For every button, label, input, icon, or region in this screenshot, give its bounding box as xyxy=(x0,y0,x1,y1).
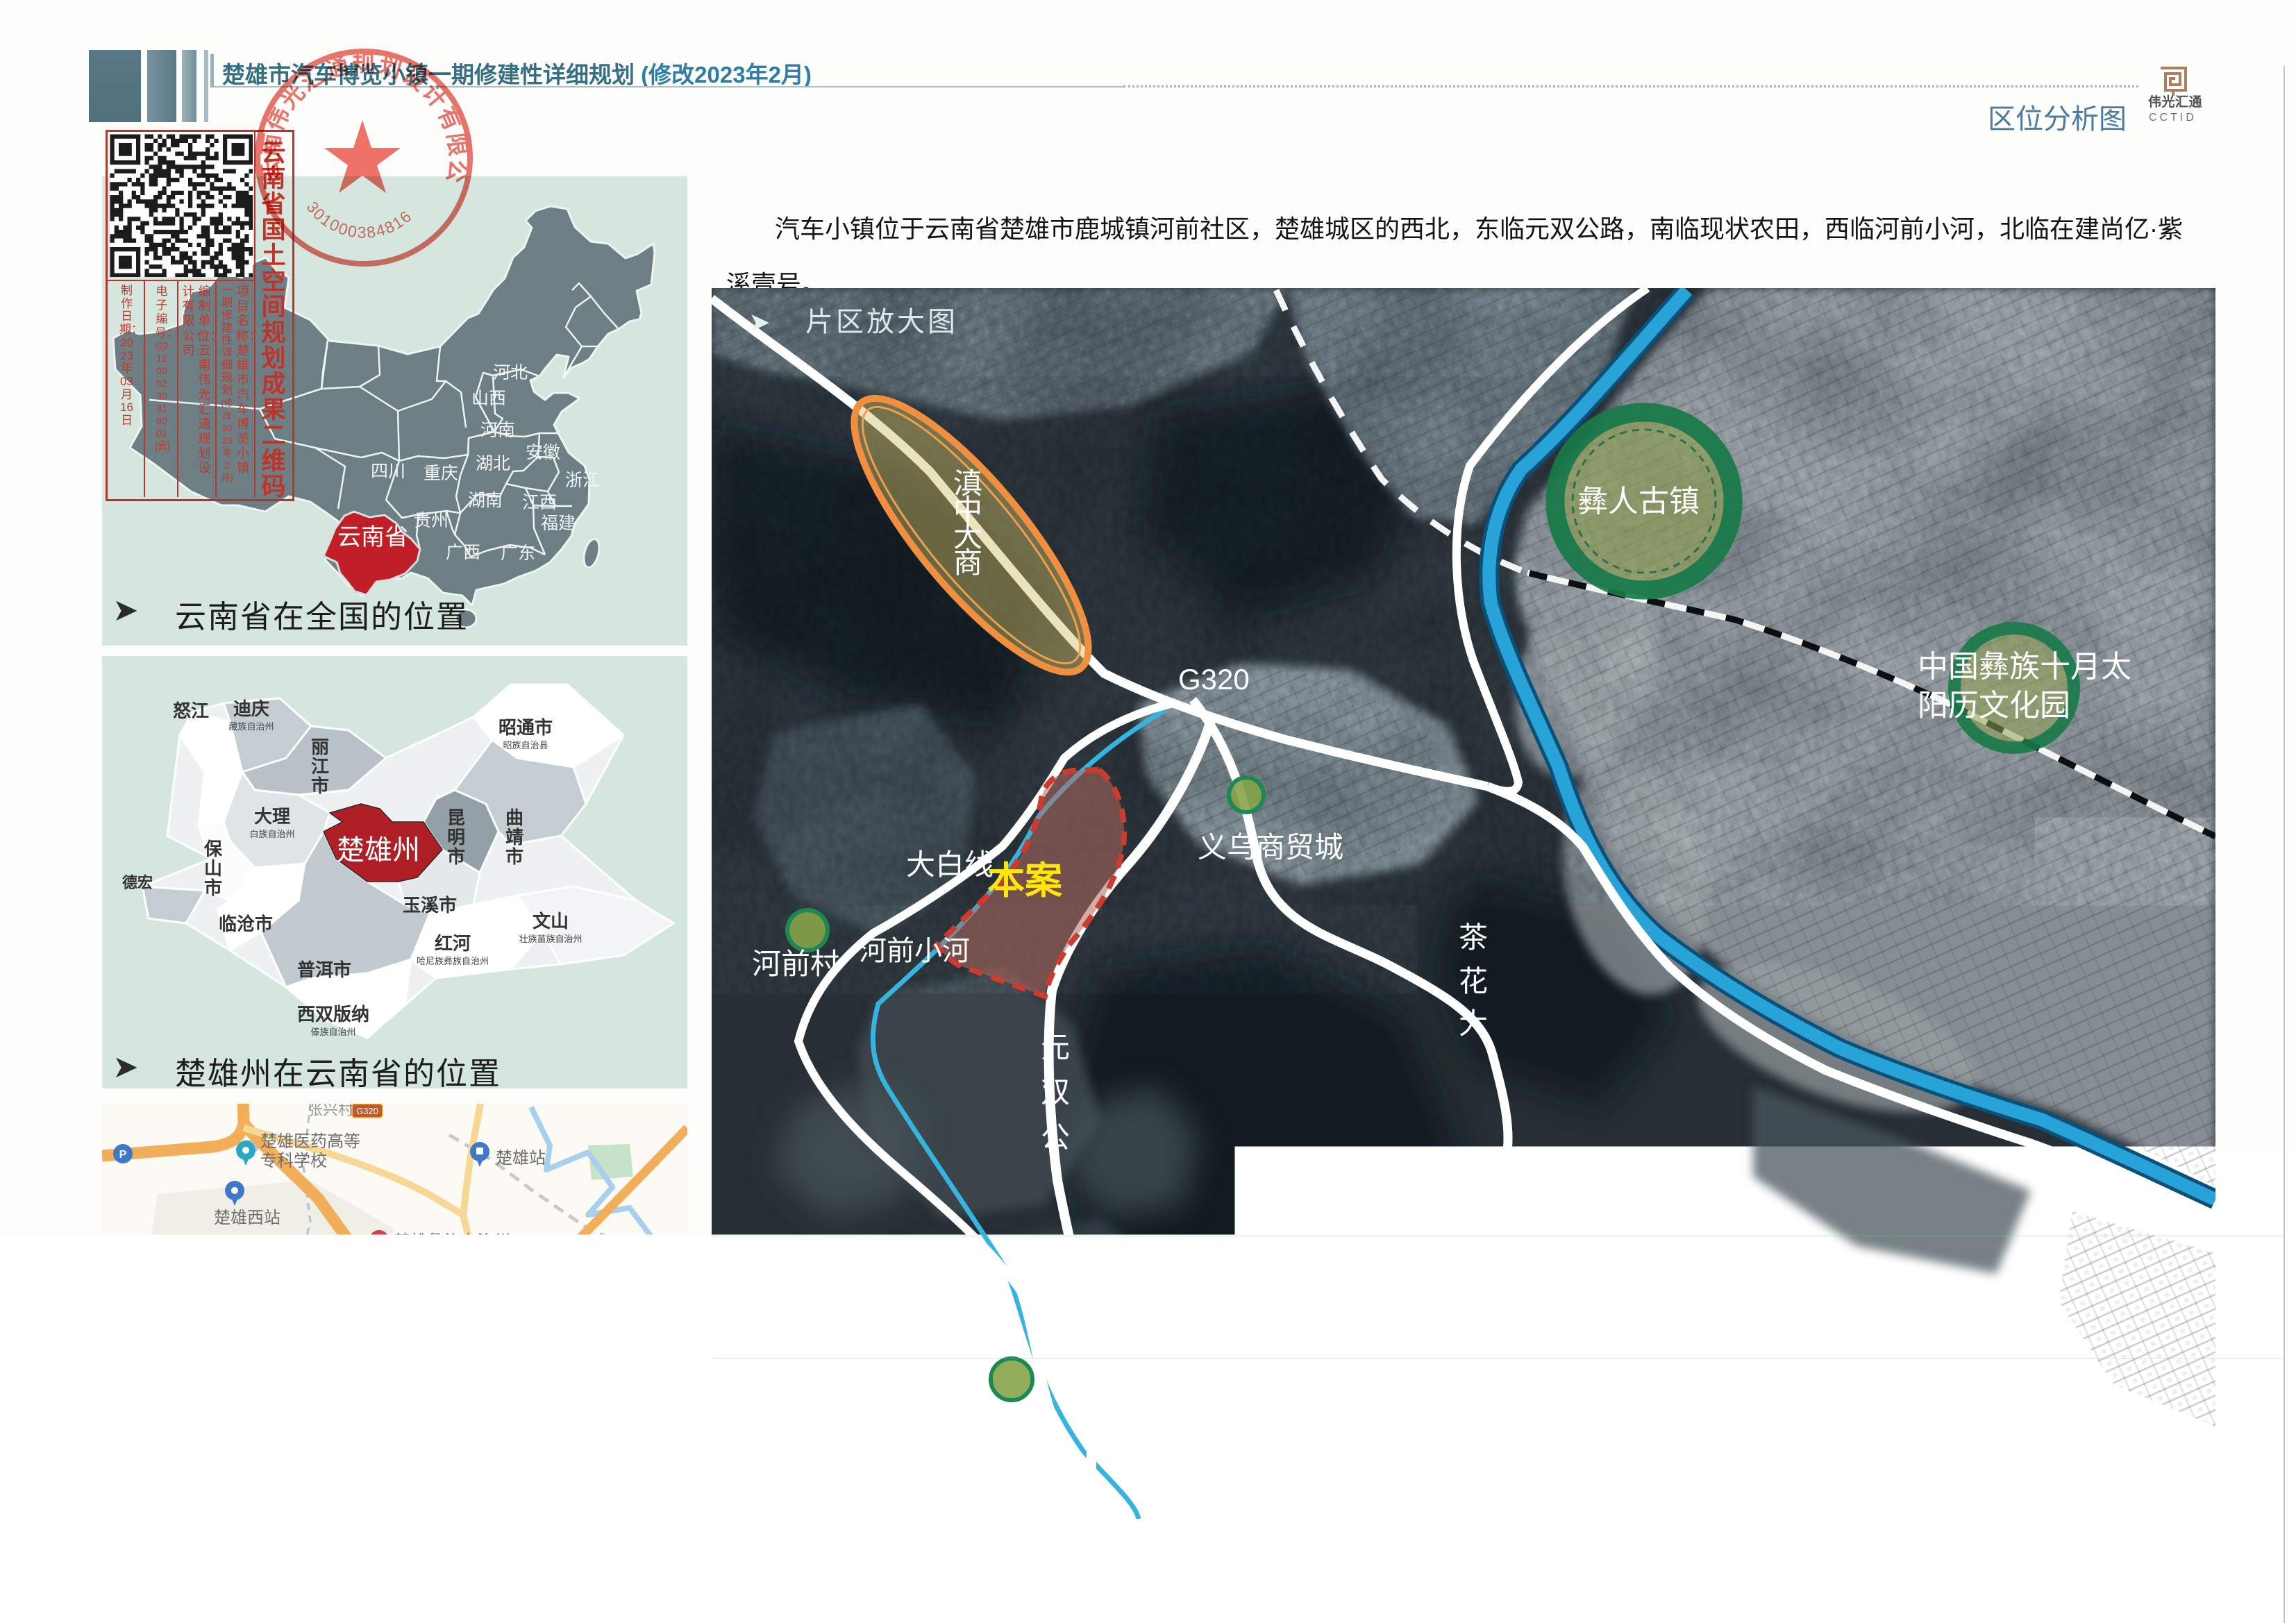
svg-text:市: 市 xyxy=(505,846,523,867)
svg-text:河前小河: 河前小河 xyxy=(859,936,970,966)
svg-text:昭通市: 昭通市 xyxy=(498,717,553,738)
svg-text:湖南: 湖南 xyxy=(468,491,503,510)
svg-text:张兴村: 张兴村 xyxy=(308,1104,353,1118)
svg-text:伟光汇通: 伟光汇通 xyxy=(2148,94,2203,110)
svg-text:楚雄客运站: 楚雄客运站 xyxy=(471,1386,555,1404)
svg-text:下河村: 下河村 xyxy=(115,1361,160,1379)
svg-text:彝人古镇: 彝人古镇 xyxy=(334,1295,401,1314)
svg-text:河南: 河南 xyxy=(480,421,515,440)
svg-text:茶: 茶 xyxy=(1459,921,1488,954)
svg-text:湖北: 湖北 xyxy=(476,454,510,473)
svg-text:楚雄站: 楚雄站 xyxy=(496,1149,546,1168)
svg-text:G320: G320 xyxy=(1178,663,1250,696)
svg-text:增平村: 增平村 xyxy=(953,1407,1041,1440)
svg-text:楚雄医药高等: 楚雄医药高等 xyxy=(260,1132,360,1151)
svg-text:彝人古镇: 彝人古镇 xyxy=(1577,485,1700,519)
svg-text:市: 市 xyxy=(204,877,222,898)
svg-text:西双版纳: 西双版纳 xyxy=(297,1004,369,1025)
svg-text:河前村: 河前村 xyxy=(752,948,839,980)
svg-text:P: P xyxy=(119,1149,127,1161)
svg-text:P: P xyxy=(672,1307,680,1319)
svg-text:301000384816: 301000384816 xyxy=(303,198,415,242)
svg-text:重庆: 重庆 xyxy=(424,464,458,483)
svg-text:曲: 曲 xyxy=(505,807,523,828)
svg-text:江西: 江西 xyxy=(522,493,557,512)
svg-text:山西: 山西 xyxy=(471,389,506,408)
svg-text:医药园区: 医药园区 xyxy=(621,1380,687,1399)
svg-text:傣族自治州: 傣族自治州 xyxy=(310,1027,355,1037)
svg-text:阳历文化园: 阳历文化园 xyxy=(1918,689,2070,723)
svg-text:靖: 靖 xyxy=(505,827,523,848)
svg-text:德宏: 德宏 xyxy=(122,874,153,891)
svg-text:元: 元 xyxy=(1041,1031,1070,1063)
svg-text:昆: 昆 xyxy=(447,807,465,828)
svg-text:怒江: 怒江 xyxy=(173,700,209,721)
svg-text:楚雄西站: 楚雄西站 xyxy=(214,1209,280,1227)
svg-text:CCTID: CCTID xyxy=(2149,112,2197,124)
svg-text:桃园工业园区: 桃园工业园区 xyxy=(588,1261,687,1279)
svg-text:文山: 文山 xyxy=(533,911,569,932)
svg-text:楚雄师范学院: 楚雄师范学院 xyxy=(501,1485,601,1504)
svg-text:大白线: 大白线 xyxy=(906,848,994,881)
svg-text:本案: 本案 xyxy=(987,860,1063,902)
svg-text:迪庆: 迪庆 xyxy=(233,698,269,719)
svg-text:河北: 河北 xyxy=(493,363,528,382)
svg-text:(新校区): (新校区) xyxy=(514,1502,575,1518)
svg-text:专科学校: 专科学校 xyxy=(260,1152,327,1170)
svg-text:片区放大图: 片区放大图 xyxy=(805,307,958,337)
svg-text:邵家村: 邵家村 xyxy=(124,1433,170,1451)
svg-text:➤: ➤ xyxy=(748,308,771,337)
svg-text:商: 商 xyxy=(953,546,982,579)
svg-text:楚雄市: 楚雄市 xyxy=(467,1415,529,1438)
svg-text:哈尼族彝族自治州: 哈尼族彝族自治州 xyxy=(417,956,489,966)
svg-text:藏族自治州: 藏族自治州 xyxy=(228,721,274,732)
svg-text:普洱市: 普洱市 xyxy=(297,959,351,980)
svg-text:四川: 四川 xyxy=(371,462,405,481)
svg-text:曹家村: 曹家村 xyxy=(249,1502,295,1518)
svg-text:义乌商贸城: 义乌商贸城 xyxy=(1198,831,1343,864)
svg-text:G227: G227 xyxy=(260,1453,283,1463)
svg-text:公: 公 xyxy=(1041,1121,1070,1154)
svg-text:广西: 广西 xyxy=(446,543,480,562)
svg-text:昭族自治县: 昭族自治县 xyxy=(503,740,548,750)
svg-text:市: 市 xyxy=(447,846,465,867)
svg-text:福建: 福建 xyxy=(541,514,576,533)
svg-text:中国彝族十月太: 中国彝族十月太 xyxy=(1918,650,2131,684)
svg-text:大理: 大理 xyxy=(254,806,290,827)
svg-text:水文水资源局: 水文水资源局 xyxy=(394,1252,494,1270)
svg-text:白族自治州: 白族自治州 xyxy=(249,829,294,839)
svg-text:广东: 广东 xyxy=(501,544,535,563)
svg-text:楚雄州: 楚雄州 xyxy=(337,835,420,866)
svg-text:保: 保 xyxy=(203,839,223,859)
svg-text:云南省: 云南省 xyxy=(337,524,408,550)
svg-text:山: 山 xyxy=(204,858,222,879)
svg-text:楚雄彝族自治州: 楚雄彝族自治州 xyxy=(342,1335,536,1363)
svg-text:滇中大商汇: 滇中大商汇 xyxy=(201,1276,284,1295)
svg-text:壮族苗族自治州: 壮族苗族自治州 xyxy=(519,934,582,944)
svg-text:江: 江 xyxy=(311,756,329,777)
svg-text:花: 花 xyxy=(1459,965,1488,998)
svg-text:玉溪市: 玉溪市 xyxy=(403,895,457,916)
svg-text:浙江: 浙江 xyxy=(565,471,600,490)
svg-text:G320: G320 xyxy=(356,1106,378,1116)
svg-text:双: 双 xyxy=(1041,1076,1070,1109)
svg-text:大: 大 xyxy=(1459,1007,1488,1040)
svg-text:峨碌公园: 峨碌公园 xyxy=(407,1471,474,1490)
svg-text:红河: 红河 xyxy=(435,933,471,954)
svg-text:贵州: 贵州 xyxy=(414,511,449,530)
svg-text:市: 市 xyxy=(311,775,329,796)
svg-text:临沧市: 临沧市 xyxy=(219,914,273,934)
svg-text:楚雄彝族自治州: 楚雄彝族自治州 xyxy=(394,1232,510,1251)
svg-text:丽: 丽 xyxy=(311,737,329,757)
svg-text:安徽: 安徽 xyxy=(526,443,560,462)
svg-text:明: 明 xyxy=(447,827,465,848)
